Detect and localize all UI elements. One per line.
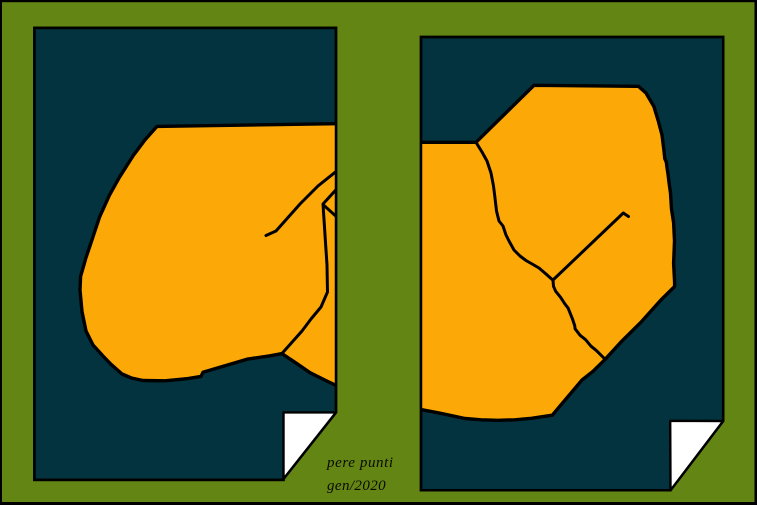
svg-text:pere punti: pere punti — [326, 455, 394, 471]
svg-text:gen/2020: gen/2020 — [327, 478, 386, 494]
